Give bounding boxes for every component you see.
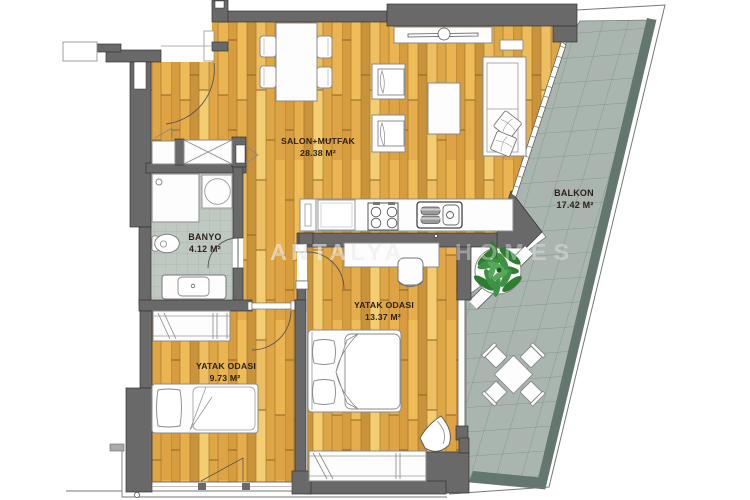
svg-text:ANTALYA: ANTALYA bbox=[270, 239, 406, 265]
svg-text:17.42 M²: 17.42 M² bbox=[556, 200, 593, 210]
svg-text:BALKON: BALKON bbox=[554, 188, 594, 198]
svg-text:9.73 M²: 9.73 M² bbox=[210, 373, 241, 383]
svg-text:HOMES: HOMES bbox=[455, 239, 576, 265]
svg-text:SALON+MUTFAK: SALON+MUTFAK bbox=[281, 136, 356, 146]
svg-text:YATAK ODASI: YATAK ODASI bbox=[354, 300, 414, 310]
svg-text:BANYO: BANYO bbox=[188, 232, 221, 242]
svg-text:13.37 M²: 13.37 M² bbox=[365, 312, 401, 322]
svg-text:YATAK ODASI: YATAK ODASI bbox=[196, 361, 256, 371]
svg-text:4.12 M²: 4.12 M² bbox=[189, 244, 221, 254]
svg-text:28.38 M²: 28.38 M² bbox=[300, 148, 336, 158]
